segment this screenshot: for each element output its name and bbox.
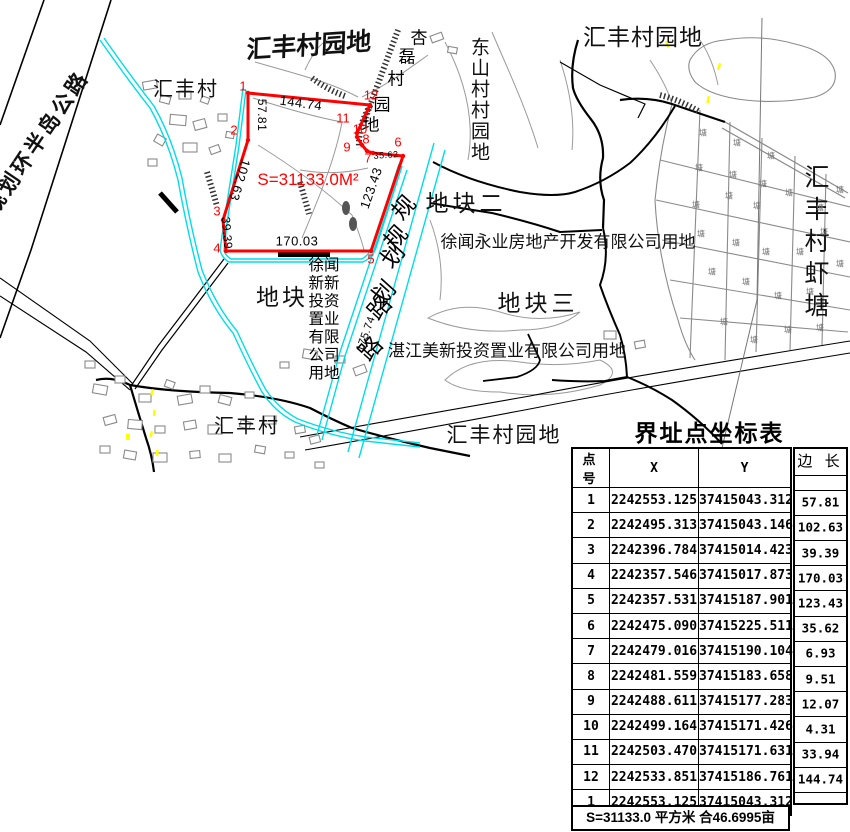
- edge-label-0: 57.81: [255, 99, 269, 132]
- table-cell: 2242533.851: [610, 765, 699, 790]
- xinxin-row-4: 有限: [306, 329, 342, 347]
- table-cell: 5: [572, 588, 610, 613]
- edge-length-value: 6.93: [795, 646, 846, 661]
- pond-mark-6: 塘: [725, 191, 733, 202]
- xinxin-row-5: 公司: [306, 347, 342, 365]
- table-cell: 11: [572, 739, 610, 764]
- edge-length-value: 57.81: [795, 495, 846, 510]
- table-cell: 2242357.546: [610, 563, 699, 588]
- pond-mark-24: 塘: [784, 325, 792, 336]
- pond-mark-18: 塘: [742, 277, 750, 288]
- table-cell: 2242357.531: [610, 588, 699, 613]
- label-plot-left: 地块: [256, 278, 308, 312]
- edge-divider: [795, 716, 846, 717]
- table-cell: 8: [572, 664, 610, 689]
- table-cell: 6: [572, 613, 610, 638]
- table-cell: 9: [572, 689, 610, 714]
- header-point-no: 点 号: [572, 448, 610, 488]
- pond-mark-16: 塘: [820, 227, 828, 238]
- table-row: 62242475.09037415225.511: [572, 613, 791, 638]
- label-huifeng-village-nw: 汇丰村: [153, 73, 219, 102]
- vertex-label-1: 1: [239, 79, 246, 94]
- vertex-label-7: 7: [364, 151, 371, 166]
- pond-mark-22: 塘: [720, 317, 728, 328]
- table-cell: 37415171.426: [699, 714, 792, 739]
- pond-mark-5: 塘: [759, 179, 767, 190]
- char-label-0-2: 村: [388, 65, 405, 90]
- table-cell: 2242475.090: [610, 613, 699, 638]
- table-title: 界址点坐标表: [571, 414, 848, 448]
- table-row: 42242357.54637415017.873: [572, 563, 791, 588]
- cadastral-map-sheet: { "map": { "labels": { "planned_highway"…: [0, 0, 850, 832]
- xinxin-row-1: 新新: [306, 275, 342, 293]
- table-row: 102242499.16437415171.426: [572, 714, 791, 739]
- label-zhanjiang-meixin: 湛江美新投资置业有限公司用地: [388, 337, 626, 362]
- pond-mark-23: 塘: [750, 335, 758, 346]
- edge-length-value: 144.74: [795, 772, 846, 787]
- pond-mark-13: 塘: [732, 238, 740, 249]
- edge-divider: [795, 565, 846, 566]
- edge-length-value: 4.31: [795, 722, 846, 737]
- table-cell: 2242488.611: [610, 689, 699, 714]
- table-row: 122242533.85137415186.761: [572, 765, 791, 790]
- header-edge-length: 边 长: [795, 449, 846, 476]
- road-hatch: [160, 193, 177, 212]
- pond-mark-14: 塘: [762, 247, 770, 258]
- table-row: 12242553.12537415043.312: [572, 488, 791, 513]
- vertex-label-2: 2: [230, 123, 237, 138]
- vertex-label-6: 6: [394, 135, 401, 150]
- edge-divider: [795, 792, 846, 793]
- pond-mark-20: 塘: [806, 287, 814, 298]
- pond-mark-21: 塘: [836, 259, 844, 270]
- table-cell: 4: [572, 563, 610, 588]
- table-row: 72242479.01637415190.104: [572, 639, 791, 664]
- pond-mark-3: 塘: [695, 163, 703, 174]
- table-cell: 3: [572, 538, 610, 563]
- table-row: 52242357.53137415187.901: [572, 588, 791, 613]
- edge-length-column: 边 长 57.81102.6339.39170.03123.4335.626.9…: [793, 447, 848, 805]
- table-footer: S=31133.0 平方米 合46.6995亩: [571, 805, 790, 831]
- xinxin-row-2: 投资: [306, 293, 342, 311]
- edge-length-value: 170.03: [795, 570, 846, 585]
- pond-mark-9: 塘: [785, 188, 793, 199]
- edge-divider: [795, 767, 846, 768]
- header-x: X: [610, 448, 699, 488]
- pond-symbol: [342, 201, 350, 215]
- label-xuwen-yongye: 徐闻永业房地产开发有限公司用地: [441, 228, 696, 253]
- vertex-label-10: 10: [353, 122, 367, 137]
- pond-mark-15: 塘: [796, 247, 804, 258]
- table-cell: 2242499.164: [610, 714, 699, 739]
- table-cell: 37415017.873: [699, 563, 792, 588]
- pond-mark-12: 塘: [697, 229, 705, 240]
- table-cell: 37415177.283: [699, 689, 792, 714]
- pond-mark-8: 塘: [753, 201, 761, 212]
- table-cell: 37415225.511: [699, 613, 792, 638]
- pond-mark-4: 塘: [729, 170, 737, 181]
- pond-mark-10: 塘: [816, 203, 824, 214]
- pond-mark-19: 塘: [774, 291, 782, 302]
- pond-mark-17: 塘: [708, 267, 716, 278]
- edge-length-value: 33.94: [795, 747, 846, 762]
- table-cell: 37415043.312: [699, 488, 792, 513]
- table-row: 82242481.55937415183.658: [572, 664, 791, 689]
- table-cell: 2242479.016: [610, 639, 699, 664]
- pond-mark-1: 塘: [733, 138, 741, 149]
- edge-length-value: 12.07: [795, 696, 846, 711]
- table-cell: 1: [572, 488, 610, 513]
- xinxin-row-0: 徐闻: [306, 257, 342, 275]
- label-huifeng-garden-s: 汇丰村园地: [447, 419, 562, 449]
- edge-length-value: 39.39: [795, 545, 846, 560]
- table-row: 92242488.61137415177.283: [572, 689, 791, 714]
- table-cell: 37415187.901: [699, 588, 792, 613]
- label-plot2: 地块二: [426, 184, 507, 218]
- edge-divider: [795, 540, 846, 541]
- xinxin-row-6: 用地: [306, 365, 342, 383]
- table-cell: 2: [572, 513, 610, 538]
- table-cell: 37415186.761: [699, 765, 792, 790]
- table-cell: 7: [572, 639, 610, 664]
- edge-divider: [795, 490, 846, 491]
- vertex-label-5: 5: [367, 252, 374, 267]
- vertex-label-9: 9: [343, 140, 350, 155]
- edge-divider: [795, 666, 846, 667]
- edge-length-value: 9.51: [795, 671, 846, 686]
- vertex-label-12: 12: [364, 88, 378, 103]
- edge-length-value: 102.63: [795, 520, 846, 535]
- table-row: 32242396.78437415014.423: [572, 538, 791, 563]
- table-cell: 2242481.559: [610, 664, 699, 689]
- table-cell: 12: [572, 765, 610, 790]
- table-cell: 2242495.313: [610, 513, 699, 538]
- pond-mark-25: 塘: [816, 323, 824, 334]
- label-dongshan-garden: 东山村村园地: [465, 37, 492, 163]
- pond-symbol: [349, 217, 357, 231]
- label-plot3: 地块三: [498, 284, 579, 318]
- edge-divider: [795, 691, 846, 692]
- pond-mark-7: 塘: [692, 200, 700, 211]
- pond-mark-2: 塘: [767, 151, 775, 162]
- edge-divider: [795, 742, 846, 743]
- edge-label-3: 39.39: [219, 216, 236, 250]
- table-cell: 37415171.631: [699, 739, 792, 764]
- table-cell: 37415014.423: [699, 538, 792, 563]
- edge-divider: [795, 590, 846, 591]
- table-cell: 2242503.470: [610, 739, 699, 764]
- edge-label-6: 35.62: [373, 149, 399, 161]
- pond-mark-0: 塘: [699, 128, 707, 139]
- label-huifeng-village-s: 汇丰村: [214, 410, 280, 439]
- vertex-label-4: 4: [213, 241, 220, 256]
- table-header-row: 点 号 X Y: [572, 448, 791, 488]
- xinxin-row-3: 置业: [306, 311, 342, 329]
- edge-length-value: 123.43: [795, 596, 846, 611]
- pond-mark-11: 塘: [836, 185, 844, 196]
- edge-label-4: 170.03: [276, 234, 319, 249]
- label-huifeng-garden-ne: 汇丰村园地: [583, 18, 703, 52]
- edge-divider: [795, 616, 846, 617]
- table-cell: 2242553.125: [610, 488, 699, 513]
- edge-divider: [795, 641, 846, 642]
- table-cell: 37415183.658: [699, 664, 792, 689]
- table-cell: 2242396.784: [610, 538, 699, 563]
- label-xuwen-xinxin: 徐闻新新投资置业有限公司用地: [306, 257, 342, 383]
- table-cell: 10: [572, 714, 610, 739]
- vertex-label-11: 11: [336, 111, 350, 126]
- label-shrimp-pond: 汇丰村虾塘: [797, 164, 833, 324]
- edge-divider: [795, 515, 846, 516]
- table-row: 22242495.31337415043.146: [572, 513, 791, 538]
- coordinate-table: 点 号 X Y 12242553.12537415043.31222242495…: [571, 447, 792, 816]
- edge-length-value: 35.62: [795, 621, 846, 636]
- table-row: 112242503.47037415171.631: [572, 739, 791, 764]
- table-cell: 37415043.146: [699, 513, 792, 538]
- header-y: Y: [699, 448, 792, 488]
- label-parcel-area: S=31133.0M²: [257, 170, 358, 190]
- table-cell: 37415190.104: [699, 639, 792, 664]
